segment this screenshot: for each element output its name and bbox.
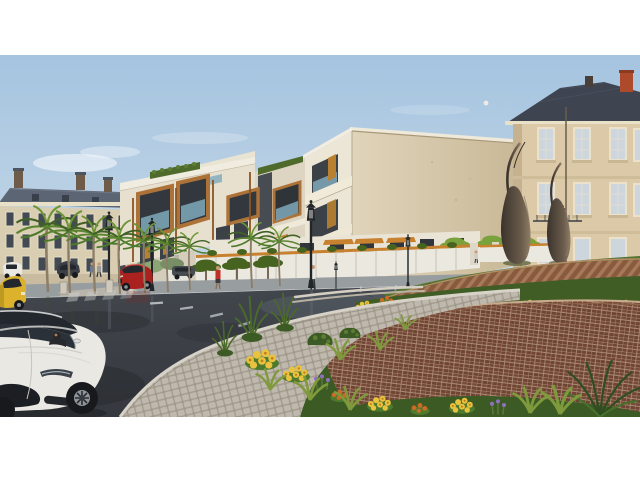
- front-wheel: [66, 382, 98, 414]
- side-mirror: [74, 339, 81, 343]
- white-minivan: [3, 262, 22, 279]
- architectural-render-canvas: [0, 0, 640, 480]
- red-crossover: [118, 265, 153, 291]
- render-scene: [0, 0, 640, 480]
- red-chimney: [620, 72, 633, 92]
- moon: [484, 101, 489, 106]
- yellow-hatchback: [0, 276, 26, 310]
